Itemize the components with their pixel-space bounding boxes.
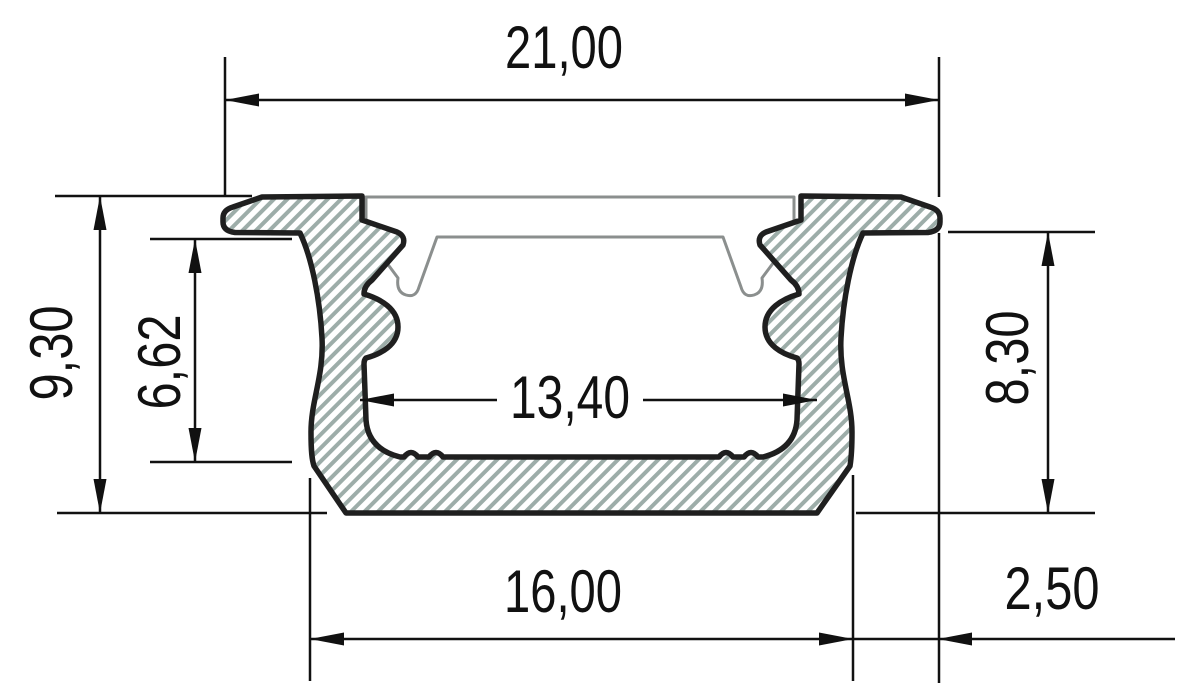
arrowhead-left: [310, 633, 344, 646]
profile-drawing: 21,00 9,30 6,62 8,30 13,40: [0, 0, 1181, 695]
dimension-inner-width: 13,40: [360, 364, 817, 431]
dimension-right-height: 8,30: [856, 232, 1095, 513]
dimension-flange-width: 2,50: [853, 555, 1175, 646]
dimension-label-flange-width: 2,50: [1005, 555, 1100, 622]
diffuser-cover: [366, 197, 794, 296]
profile-cross-section: [223, 196, 940, 513]
cover-outline: [366, 197, 794, 296]
drawing-canvas: 21,00 9,30 6,62 8,30 13,40: [0, 0, 1181, 695]
arrowhead-down: [189, 428, 202, 462]
dimension-inner-height: 6,62: [126, 239, 292, 462]
profile-body: [223, 196, 940, 513]
dimension-label-inner-height: 6,62: [126, 315, 193, 410]
arrowhead-right: [905, 94, 939, 107]
arrowhead-up: [1042, 232, 1055, 266]
arrowhead-right: [819, 633, 853, 646]
arrowhead-left: [225, 94, 259, 107]
arrowhead-up: [94, 196, 107, 230]
dimension-label-inner-width: 13,40: [510, 364, 630, 431]
arrowhead-left: [938, 633, 972, 646]
dimension-label-bottom-width: 16,00: [504, 558, 622, 625]
dimension-label-left-height: 9,30: [18, 306, 85, 401]
arrowhead-up: [189, 239, 202, 273]
arrowhead-down: [1042, 479, 1055, 513]
dimension-label-top-width: 21,00: [505, 14, 623, 81]
arrowhead-down: [94, 479, 107, 513]
dimension-label-right-height: 8,30: [974, 311, 1041, 406]
